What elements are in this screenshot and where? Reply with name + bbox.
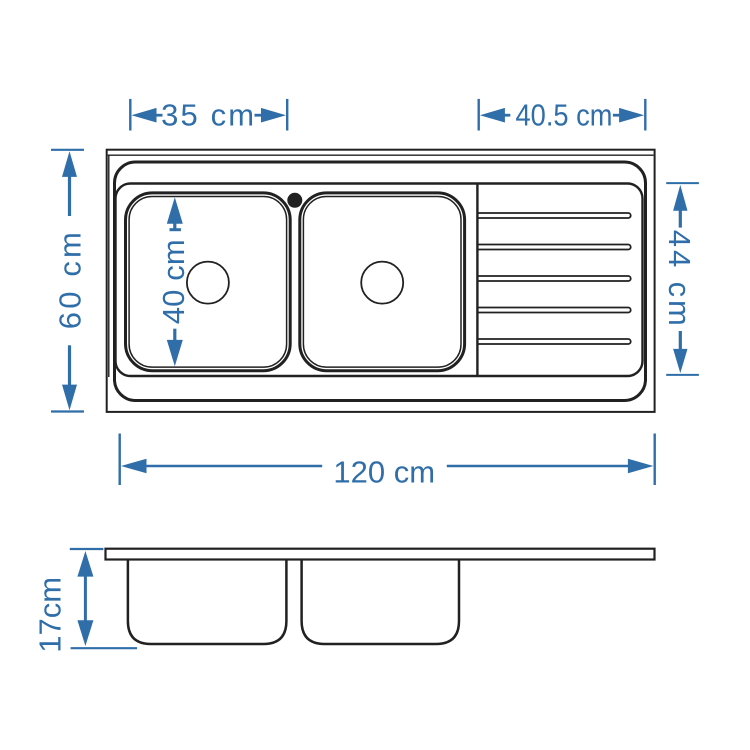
svg-text:44 cm: 44 cm bbox=[662, 230, 697, 326]
svg-text:35 cm: 35 cm bbox=[161, 98, 254, 133]
svg-text:40.5 cm: 40.5 cm bbox=[516, 98, 613, 133]
svg-text:40 cm: 40 cm bbox=[156, 239, 191, 324]
svg-text:17cm: 17cm bbox=[32, 577, 67, 653]
svg-text:120 cm: 120 cm bbox=[333, 454, 435, 489]
svg-text:60 cm: 60 cm bbox=[53, 232, 88, 329]
